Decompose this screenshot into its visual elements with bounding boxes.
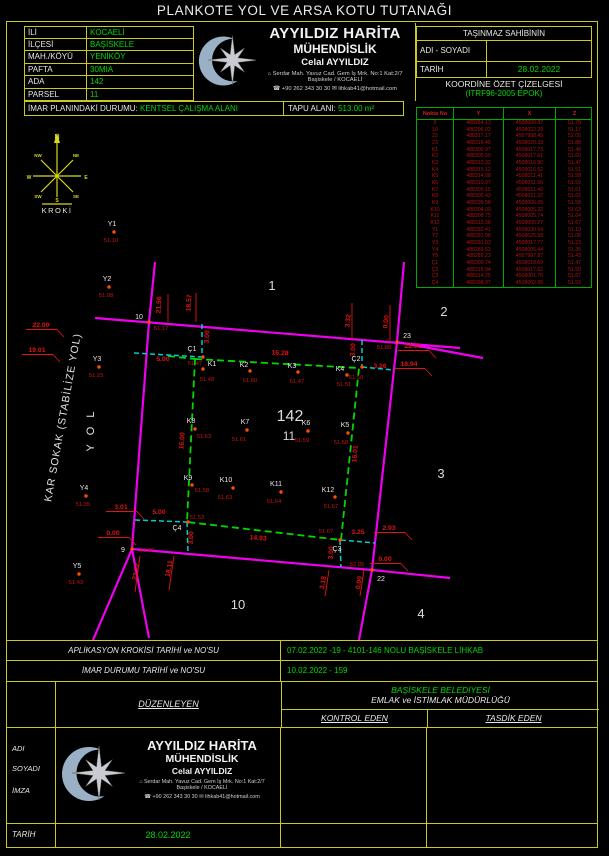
point-elevation: 52.05 bbox=[350, 562, 365, 568]
point-elevation: 51.51 bbox=[337, 382, 352, 388]
svg-text:0.00: 0.00 bbox=[106, 530, 119, 537]
svg-text:3.00: 3.00 bbox=[188, 531, 196, 545]
dimension-label: 0.00 bbox=[98, 530, 136, 545]
dimension-label: 18.57 bbox=[186, 294, 194, 312]
compass-direction-label: NW bbox=[34, 153, 42, 158]
offset-line bbox=[135, 520, 187, 522]
point-name: Y5 bbox=[73, 563, 82, 570]
svg-text:18.94: 18.94 bbox=[400, 361, 417, 368]
survey-point bbox=[395, 340, 398, 343]
street-yol-label: Y O L bbox=[85, 409, 97, 452]
svg-text:18.11: 18.11 bbox=[165, 560, 175, 578]
dimension-label: 18.94 bbox=[394, 361, 432, 376]
kontrol-signature-cell bbox=[281, 728, 427, 823]
point-name: K3 bbox=[288, 363, 297, 370]
survey-point bbox=[97, 365, 100, 368]
survey-point bbox=[193, 427, 196, 430]
aplikasyon-row: APLİKASYON KROKİSİ TARİHİ ve NO'SU 07.02… bbox=[6, 640, 598, 661]
dimension-label: 3.26 bbox=[373, 363, 386, 370]
point-name: Ç3 bbox=[333, 546, 342, 553]
svg-text:16.01: 16.01 bbox=[351, 445, 359, 463]
point-elevation: 51.53 bbox=[190, 515, 205, 521]
survey-point bbox=[130, 547, 133, 550]
survey-point bbox=[279, 490, 282, 493]
point-elevation: 51.08 bbox=[99, 293, 114, 299]
dimension-label: 19.01 bbox=[22, 347, 60, 362]
tarih-label: TARİH bbox=[7, 824, 56, 847]
point-name: K1 bbox=[208, 361, 217, 368]
company-contact-line: ☎ +90 262 343 30 30 ✉ lihkab41@hotmail.c… bbox=[126, 794, 278, 800]
dimension-label: 22.00 bbox=[26, 322, 64, 337]
parcel-boundary bbox=[187, 359, 359, 540]
road-line bbox=[132, 549, 149, 638]
offset-line bbox=[340, 540, 341, 567]
point-elevation: 51.47 bbox=[188, 361, 203, 367]
svg-text:3.18: 3.18 bbox=[319, 575, 328, 589]
point-name: Ç4 bbox=[173, 525, 182, 532]
point-elevation: 51.60 bbox=[243, 378, 258, 384]
dimension-label: 0.00 bbox=[355, 575, 364, 589]
svg-text:3.01: 3.01 bbox=[114, 504, 127, 511]
point-elevation: 51.78 bbox=[140, 548, 155, 554]
point-name: Y1 bbox=[108, 221, 117, 228]
parcel-number-label: 1 bbox=[268, 278, 275, 293]
point-elevation: 51.64 bbox=[267, 499, 282, 505]
svg-text:5.00: 5.00 bbox=[156, 356, 169, 363]
adi-label: ADI bbox=[12, 744, 25, 753]
svg-text:22.00: 22.00 bbox=[32, 322, 49, 329]
phone-icon: ☎ bbox=[144, 794, 151, 800]
imar-durumu-label: İMAR DURUMU TARİHİ ve NO'SU bbox=[7, 661, 281, 681]
parcel-number-label: 2 bbox=[440, 304, 447, 319]
svg-text:14.93: 14.93 bbox=[249, 534, 267, 542]
point-name: Y3 bbox=[93, 356, 102, 363]
survey-point bbox=[77, 572, 80, 575]
dimension-label: 16.00 bbox=[178, 432, 186, 450]
svg-text:0.00: 0.00 bbox=[382, 315, 390, 329]
svg-text:5.00: 5.00 bbox=[152, 509, 165, 516]
dimension-label: 16.28 bbox=[271, 350, 289, 358]
point-elevation: 51.43 bbox=[69, 580, 84, 586]
point-name: K4 bbox=[336, 366, 345, 373]
survey-point bbox=[190, 483, 193, 486]
street-name-label: KAR SOKAK (STABİLİZE YOL) bbox=[41, 332, 84, 503]
svg-text:2.93: 2.93 bbox=[382, 525, 395, 532]
compass-direction-label: SW bbox=[34, 194, 42, 199]
tarih-value: 28.02.2022 bbox=[56, 824, 281, 847]
dimension-label: 18.11 bbox=[165, 560, 175, 578]
tarih-kontrol-cell bbox=[281, 824, 427, 847]
compass-direction-label: N bbox=[54, 134, 59, 141]
tasdik-signature-cell bbox=[427, 728, 599, 823]
point-name: K2 bbox=[240, 362, 249, 369]
imza-label: İMZA bbox=[12, 786, 30, 795]
dimension-label: 3.00 bbox=[204, 330, 212, 344]
survey-point bbox=[147, 320, 150, 323]
point-elevation: 51.67 bbox=[319, 529, 334, 535]
point-elevation: 51.61 bbox=[232, 437, 247, 443]
dimension-label: 3.00 bbox=[350, 343, 358, 357]
svg-text:3.00: 3.00 bbox=[350, 343, 358, 357]
plankote-document: PLANKOTE YOL VE ARSA KOTU TUTANAĞI İLİKO… bbox=[0, 0, 609, 856]
point-elevation: 51.63 bbox=[197, 434, 212, 440]
point-name: K10 bbox=[220, 477, 233, 484]
svg-text:21.56: 21.56 bbox=[156, 296, 164, 314]
point-elevation: 51.59 bbox=[295, 438, 310, 444]
address-icon: ⌂ bbox=[139, 779, 142, 785]
point-name: 9 bbox=[121, 547, 125, 554]
parcel-number-label: 10 bbox=[231, 597, 245, 612]
parcel-number-label: 3 bbox=[437, 466, 444, 481]
signing-spacer-cell bbox=[7, 682, 56, 727]
tarih-row: TARİH 28.02.2022 bbox=[6, 824, 598, 848]
point-name: K7 bbox=[241, 419, 250, 426]
point-name: K9 bbox=[184, 475, 193, 482]
point-elevation: 51.17 bbox=[154, 326, 169, 332]
company-phone: +90 262 343 30 30 bbox=[152, 794, 197, 800]
road-line bbox=[132, 549, 450, 578]
survey-point bbox=[370, 568, 373, 571]
point-name: 10 bbox=[135, 314, 143, 321]
point-name: Ç1 bbox=[188, 346, 197, 353]
compass-direction-label: NE bbox=[73, 153, 79, 158]
point-name: Y4 bbox=[80, 485, 89, 492]
point-elevation: 51.50 bbox=[349, 375, 364, 381]
point-elevation: 51.58 bbox=[334, 440, 349, 446]
soyadi-label: SOYADI bbox=[12, 764, 40, 773]
survey-point bbox=[201, 367, 204, 370]
dimension-label: 3.01 bbox=[106, 504, 144, 519]
svg-text:0.00: 0.00 bbox=[355, 575, 364, 589]
company-address-line2: Başiskele / KOCAELİ bbox=[126, 785, 278, 791]
survey-point bbox=[107, 285, 110, 288]
svg-text:22.01: 22.01 bbox=[404, 343, 421, 350]
duzenleyen-label: DÜZENLEYEN bbox=[56, 682, 281, 727]
company-owner: Celal AYYILDIZ bbox=[126, 766, 278, 776]
aplikasyon-label: APLİKASYON KROKİSİ TARİHİ ve NO'SU bbox=[7, 641, 281, 660]
survey-point bbox=[296, 370, 299, 373]
survey-point bbox=[360, 365, 363, 368]
point-name: Y2 bbox=[103, 276, 112, 283]
point-elevation: 51.48 bbox=[200, 377, 215, 383]
road-line bbox=[359, 262, 404, 640]
dimension-label: 23.12 bbox=[132, 563, 142, 581]
point-name: K5 bbox=[341, 422, 350, 429]
dimension-label: 3.25 bbox=[351, 529, 364, 536]
point-name: K11 bbox=[270, 481, 282, 488]
company-email: lihkab41@hotmail.com bbox=[205, 794, 260, 800]
svg-text:16.00: 16.00 bbox=[178, 432, 186, 450]
dimension-label: 3.32 bbox=[344, 314, 352, 328]
svg-text:3.26: 3.26 bbox=[373, 363, 386, 370]
imar-durumu-row: İMAR DURUMU TARİHİ ve NO'SU 10.02.2022 -… bbox=[6, 661, 598, 682]
imar-durumu-value: 10.02.2022 - 159 bbox=[281, 661, 597, 681]
dimension-label: 3.00 bbox=[188, 531, 196, 545]
point-elevation: 51.10 bbox=[104, 238, 119, 244]
dimension-label: 3.18 bbox=[319, 575, 328, 589]
compass-direction-label: S bbox=[55, 198, 59, 204]
survey-point bbox=[338, 538, 341, 541]
belediye-name: BAŞİSKELE BELEDİYESİ bbox=[282, 685, 599, 695]
point-name: K12 bbox=[322, 487, 335, 494]
dimension-label: 0.00 bbox=[382, 315, 390, 329]
survey-point bbox=[306, 429, 309, 432]
svg-text:3.32: 3.32 bbox=[344, 314, 352, 328]
point-name: 22 bbox=[377, 576, 385, 583]
company-name-2: MÜHENDİSLİK bbox=[126, 753, 278, 765]
signature-area: ADI SOYADI İMZA AYYILDIZ HARİTA MÜHENDİS… bbox=[6, 728, 598, 824]
tasdik-eden-label: TASDİK EDEN bbox=[428, 710, 599, 728]
email-icon: ✉ bbox=[199, 794, 204, 800]
compass-direction-label: SE bbox=[73, 194, 79, 199]
point-elevation: 51.47 bbox=[290, 379, 305, 385]
offset-line bbox=[341, 540, 375, 543]
parcel-number-label: 11 bbox=[283, 429, 296, 443]
kontrol-eden-label: KONTROL EDEN bbox=[282, 710, 428, 728]
point-elevation: 51.58 bbox=[195, 488, 210, 494]
survey-point bbox=[333, 495, 336, 498]
dimension-label: 2.93 bbox=[374, 525, 412, 540]
dimension-label: 5.00 bbox=[152, 509, 165, 516]
dimension-label: 0.00 bbox=[370, 556, 408, 571]
point-name: Ç2 bbox=[352, 356, 361, 363]
point-elevation: 51.35 bbox=[76, 502, 91, 508]
survey-point bbox=[245, 428, 248, 431]
dimension-label: 14.93 bbox=[249, 534, 267, 542]
point-name: 23 bbox=[403, 333, 411, 340]
survey-point bbox=[346, 431, 349, 434]
dimension-label: 16.01 bbox=[351, 445, 359, 463]
survey-point bbox=[201, 355, 204, 358]
signing-header-row: DÜZENLEYEN BAŞİSKELE BELEDİYESİ EMLAK ve… bbox=[6, 682, 598, 728]
survey-point bbox=[112, 230, 115, 233]
svg-text:16.28: 16.28 bbox=[271, 350, 289, 358]
survey-point bbox=[231, 486, 234, 489]
company-name: AYYILDIZ HARİTA bbox=[126, 738, 278, 753]
parcel-number-label: 4 bbox=[417, 606, 424, 621]
dimension-label: 21.56 bbox=[156, 296, 164, 314]
point-elevation: 51.63 bbox=[218, 495, 233, 501]
svg-text:18.57: 18.57 bbox=[186, 294, 194, 312]
company-logo-icon bbox=[61, 742, 125, 806]
svg-text:0.00: 0.00 bbox=[378, 556, 391, 563]
compass-direction-label: E bbox=[84, 175, 88, 181]
kroki-label: KROKİ bbox=[42, 206, 73, 215]
belediye-department: EMLAK ve İSTİMLAK MÜDÜRLÜĞÜ bbox=[282, 695, 599, 705]
point-elevation: 51.67 bbox=[324, 504, 339, 510]
svg-text:19.01: 19.01 bbox=[28, 347, 45, 354]
signature-label-column: ADI SOYADI İMZA bbox=[7, 728, 56, 823]
company-footer-block: AYYILDIZ HARİTA MÜHENDİSLİK Celal AYYILD… bbox=[56, 728, 281, 823]
aplikasyon-value: 07.02.2022 -19 - 4101-146 NOLU BAŞİSKELE… bbox=[281, 641, 597, 660]
compass-direction-label: W bbox=[27, 175, 32, 181]
survey-point bbox=[84, 494, 87, 497]
survey-point bbox=[248, 369, 251, 372]
point-elevation: 51.88 bbox=[377, 345, 392, 351]
svg-text:3.00: 3.00 bbox=[204, 330, 212, 344]
svg-text:23.12: 23.12 bbox=[132, 563, 142, 581]
dimension-label: 5.00 bbox=[156, 356, 169, 363]
svg-text:3.25: 3.25 bbox=[351, 529, 364, 536]
belediye-cell: BAŞİSKELE BELEDİYESİ EMLAK ve İSTİMLAK M… bbox=[281, 682, 599, 727]
parcel-number-label: 142 bbox=[277, 408, 304, 425]
point-elevation: 51.23 bbox=[89, 373, 104, 379]
point-name: K8 bbox=[187, 418, 196, 425]
